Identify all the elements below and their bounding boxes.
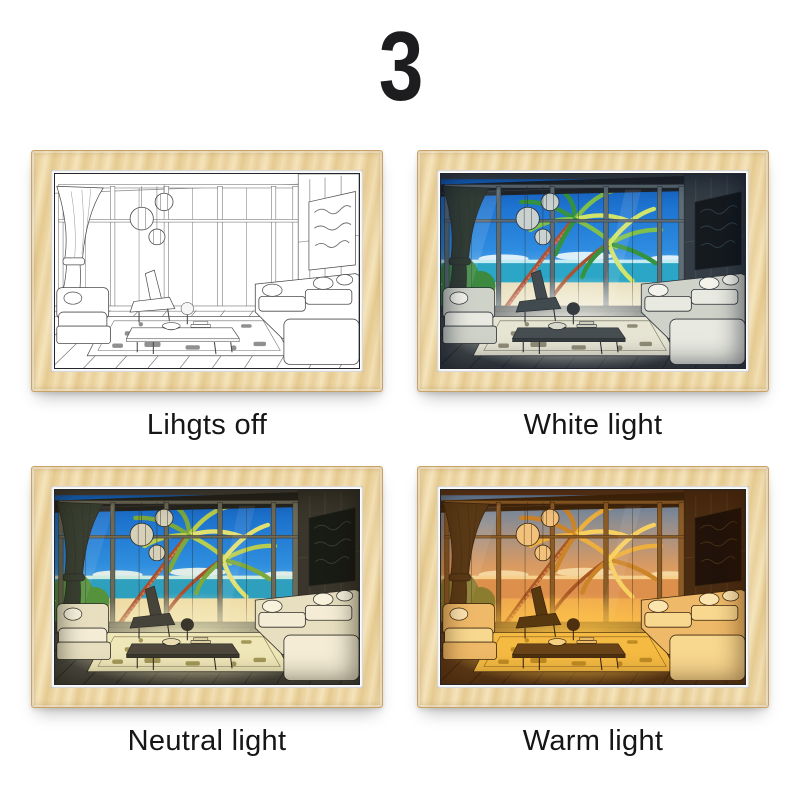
caption-label: Warm light	[523, 725, 664, 761]
artwork-white-light	[440, 173, 746, 369]
caption-label: White light	[524, 409, 663, 445]
caption-label: Neutral light	[128, 725, 287, 761]
frame-mat	[51, 170, 363, 372]
frame-mat	[437, 486, 749, 688]
wood-frame	[417, 150, 769, 392]
artwork-lights-off	[54, 173, 360, 369]
frame-mat	[51, 486, 363, 688]
scene-illustration	[55, 174, 359, 368]
scene-illustration	[55, 490, 359, 684]
header: 3	[0, 0, 800, 148]
product-figure-neutral-light: Neutral light	[31, 466, 383, 782]
left-armchair	[443, 288, 497, 344]
artwork-neutral-light	[54, 489, 360, 685]
product-collage-page: 3	[0, 0, 800, 800]
scene-illustration	[441, 174, 745, 368]
product-figure-lights-off: Lihgts off	[31, 150, 383, 466]
left-armchair	[57, 288, 111, 344]
product-figure-warm-light: Warm light	[417, 466, 769, 782]
left-armchair	[443, 604, 497, 660]
wood-frame	[417, 466, 769, 708]
left-armchair	[57, 604, 111, 660]
caption-label: Lihgts off	[147, 409, 267, 445]
wood-frame	[31, 466, 383, 708]
product-figure-white-light: White light	[417, 150, 769, 466]
frame-mat	[437, 170, 749, 372]
page-number: 3	[378, 10, 421, 123]
wood-frame	[31, 150, 383, 392]
product-grid: Lihgts off	[0, 150, 800, 782]
scene-illustration	[441, 490, 745, 684]
artwork-warm-light	[440, 489, 746, 685]
